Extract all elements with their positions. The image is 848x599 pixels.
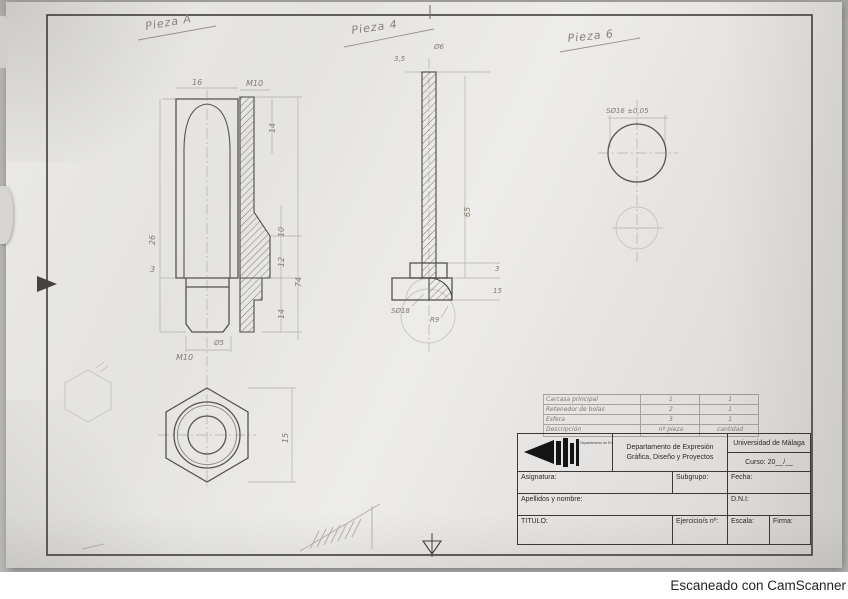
part-number: 3	[641, 415, 701, 425]
title-block: Departamento de Expresión Gráfica, Diseñ…	[517, 433, 811, 545]
dim-text: M10	[246, 79, 263, 88]
part-description: Retenedor de bolas	[544, 405, 641, 415]
bottom-center-mark	[423, 533, 441, 557]
scanner-footer-strip: Escaneado con CamScanner	[0, 572, 848, 599]
piece-6-label: Pieza 6	[567, 27, 615, 45]
table-row: Retenedor de bolas 2 1	[544, 405, 759, 415]
department-logo	[518, 434, 611, 470]
dni-field: D.N.I:	[728, 494, 810, 515]
faint-hexagon-sketch	[65, 370, 111, 422]
dim-text: Ø6	[433, 43, 445, 51]
fecha-field: Fecha:	[728, 472, 810, 493]
university-cell: Universidad de Málaga Curso: 20__/__	[728, 434, 810, 471]
dimension-texts: 16 M10 14 26 3 10 12 14 74 M10 Ø5 15 3,5…	[148, 43, 649, 443]
university-name: Universidad de Málaga	[728, 434, 810, 453]
part-quantity: 1	[700, 405, 759, 415]
part-quantity: 1	[700, 395, 759, 405]
dim-text: 26	[148, 235, 157, 245]
piece-a-section-upper	[240, 97, 270, 278]
department-logo-cell: Departamento de Expresión Gráfica, Diseñ…	[518, 434, 613, 471]
dim-text: 3,5	[394, 55, 406, 63]
piece-labels: Pieza A Pieza 4 Pieza 6	[138, 12, 640, 52]
part-description: Carcasa principal	[544, 395, 641, 405]
title-block-row-3: Apellidos y nombre: D.N.I:	[518, 494, 810, 516]
dim-text: 3	[150, 265, 155, 274]
dim-text: 16	[192, 78, 202, 87]
asignatura-field: Asignatura:	[518, 472, 673, 493]
part-number: 2	[641, 405, 701, 415]
dim-text: 15	[493, 287, 502, 295]
dim-text: M10	[176, 353, 193, 362]
camscanner-watermark: Escaneado con CamScanner	[670, 578, 846, 593]
department-line2: Gráfica, Diseño y Proyectos	[616, 453, 724, 462]
escala-field: Escala:	[728, 516, 770, 544]
titulo-field: TITULO:	[518, 516, 673, 544]
subgrupo-field: Subgrupo:	[673, 472, 728, 493]
parts-list-table: Carcasa principal 1 1 Retenedor de bolas…	[543, 394, 759, 437]
piece-4-rod-section	[422, 72, 436, 278]
piece-4-sphere-section	[429, 278, 452, 300]
dim-text: Ø5	[213, 339, 225, 347]
table-row: Esfera 3 1	[544, 415, 759, 425]
dim-text: SØ18	[391, 307, 410, 315]
scan-background: Pieza A Pieza 4 Pieza 6 16 M10 14 26 3 1…	[0, 0, 848, 572]
logo-caption: Departamento de Expresión Gráfica, Diseñ…	[580, 441, 610, 445]
dim-text: 15	[281, 433, 290, 443]
curso-field: Curso: 20__/__	[728, 453, 810, 471]
title-block-row-2: Asignatura: Subgrupo: Fecha:	[518, 472, 810, 494]
dim-text: 14	[277, 309, 286, 319]
dim-text: 14	[268, 123, 277, 133]
title-block-row-4: TITULO: Ejercicio/s nº: Escala: Firma:	[518, 516, 810, 544]
piece-4-label: Pieza 4	[351, 18, 399, 37]
part-quantity: 1	[700, 415, 759, 425]
firma-field: Firma:	[770, 516, 810, 544]
ejercicio-field: Ejercicio/s nº:	[673, 516, 728, 544]
part-description: Esfera	[544, 415, 641, 425]
dim-text: R9	[430, 316, 440, 324]
department-name-cell: Departamento de Expresión Gráfica, Diseñ…	[613, 434, 728, 471]
pencil-scribbles	[82, 504, 380, 551]
dim-text: 65	[463, 207, 472, 217]
department-line1: Departamento de Expresión	[616, 443, 724, 452]
part-number: 1	[641, 395, 701, 405]
table-row: Carcasa principal 1 1	[544, 395, 759, 405]
dim-text: 12	[277, 257, 286, 267]
dim-text: SØ16 ±0,05	[606, 107, 649, 115]
dim-text: 10	[277, 227, 286, 237]
dim-text: 74	[294, 277, 303, 287]
piece-a-section-lower	[240, 278, 262, 332]
dim-text: 3	[495, 265, 499, 273]
title-block-row-1: Departamento de Expresión Gráfica, Diseñ…	[518, 434, 810, 472]
apellidos-field: Apellidos y nombre:	[518, 494, 728, 515]
